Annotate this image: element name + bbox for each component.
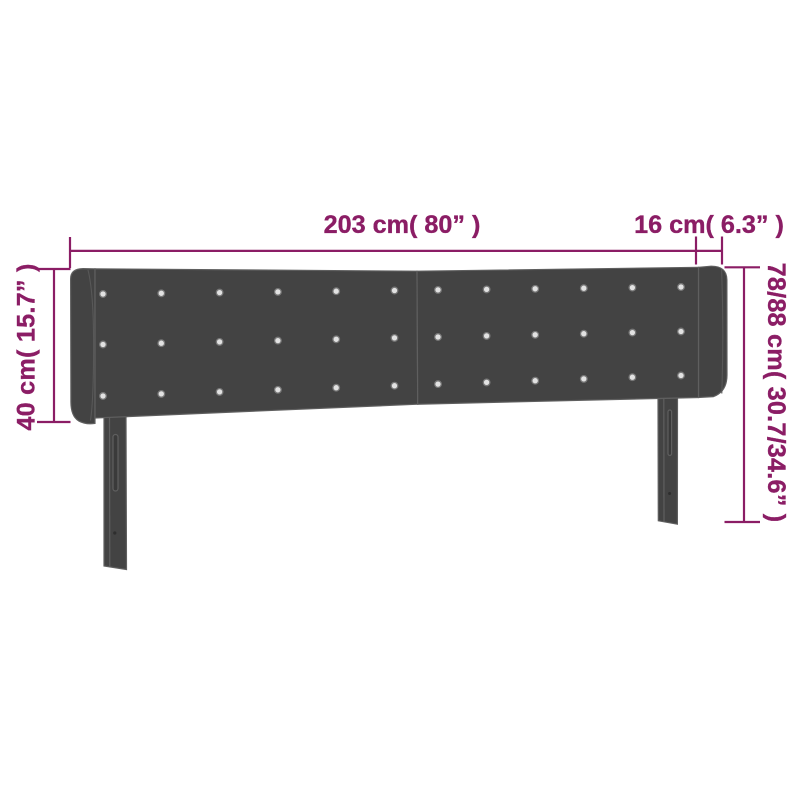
svg-text:203 cm( 80” ): 203 cm( 80” ) — [324, 211, 481, 239]
svg-text:40 cm( 15.7” ): 40 cm( 15.7” ) — [13, 263, 41, 430]
svg-text:78/88 cm( 30.7/34.6” ): 78/88 cm( 30.7/34.6” ) — [762, 263, 790, 523]
svg-text:16 cm( 6.3” ): 16 cm( 6.3” ) — [634, 211, 784, 239]
